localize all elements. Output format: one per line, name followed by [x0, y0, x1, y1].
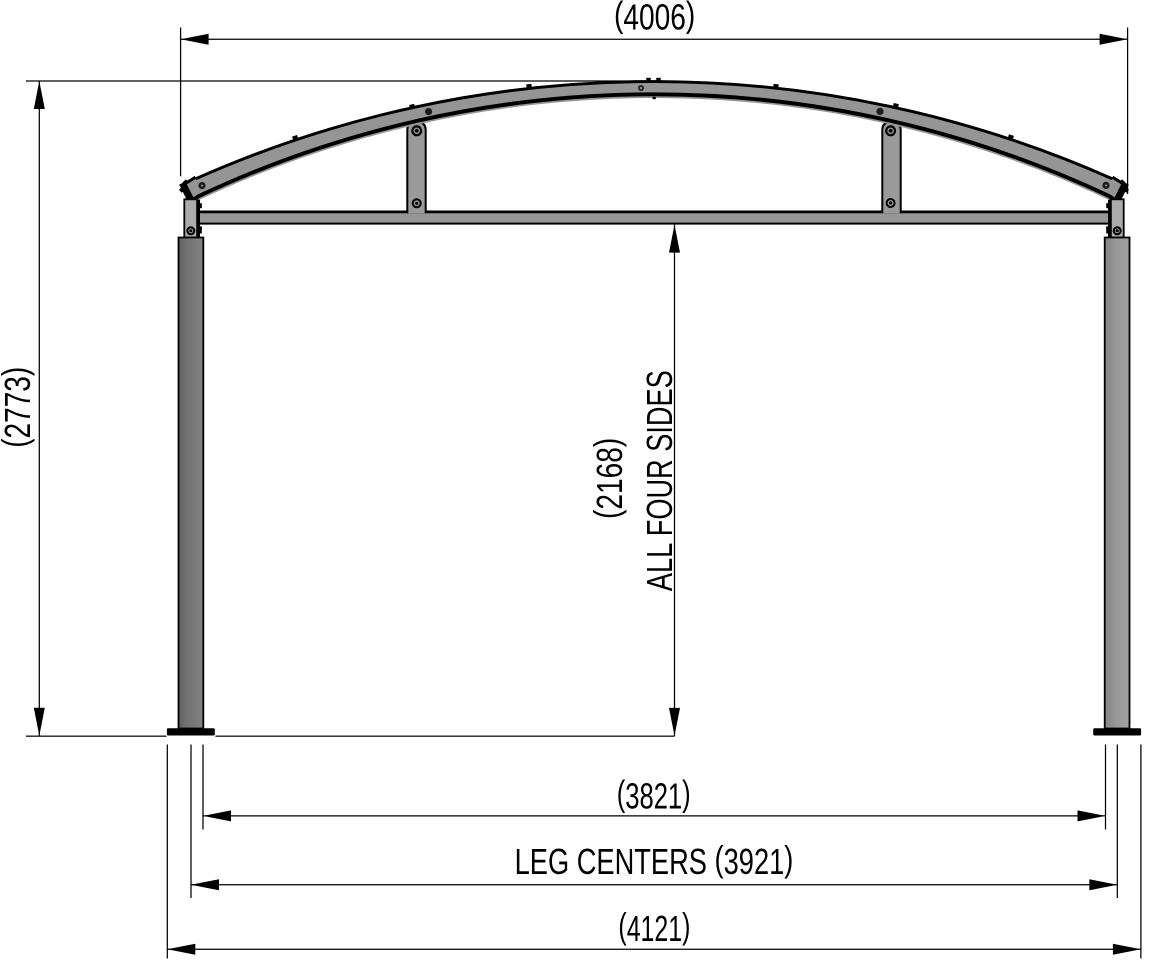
- svg-text:(4121): (4121): [618, 905, 690, 949]
- svg-text:LEG CENTERS (3921): LEG CENTERS (3921): [515, 838, 794, 882]
- svg-text:(2168): (2168): [586, 438, 630, 519]
- svg-text:(3821): (3821): [617, 773, 691, 817]
- svg-text:(4006): (4006): [614, 0, 695, 38]
- svg-text:ALL FOUR SIDES: ALL FOUR SIDES: [639, 370, 680, 591]
- svg-text:(2773): (2773): [0, 367, 38, 448]
